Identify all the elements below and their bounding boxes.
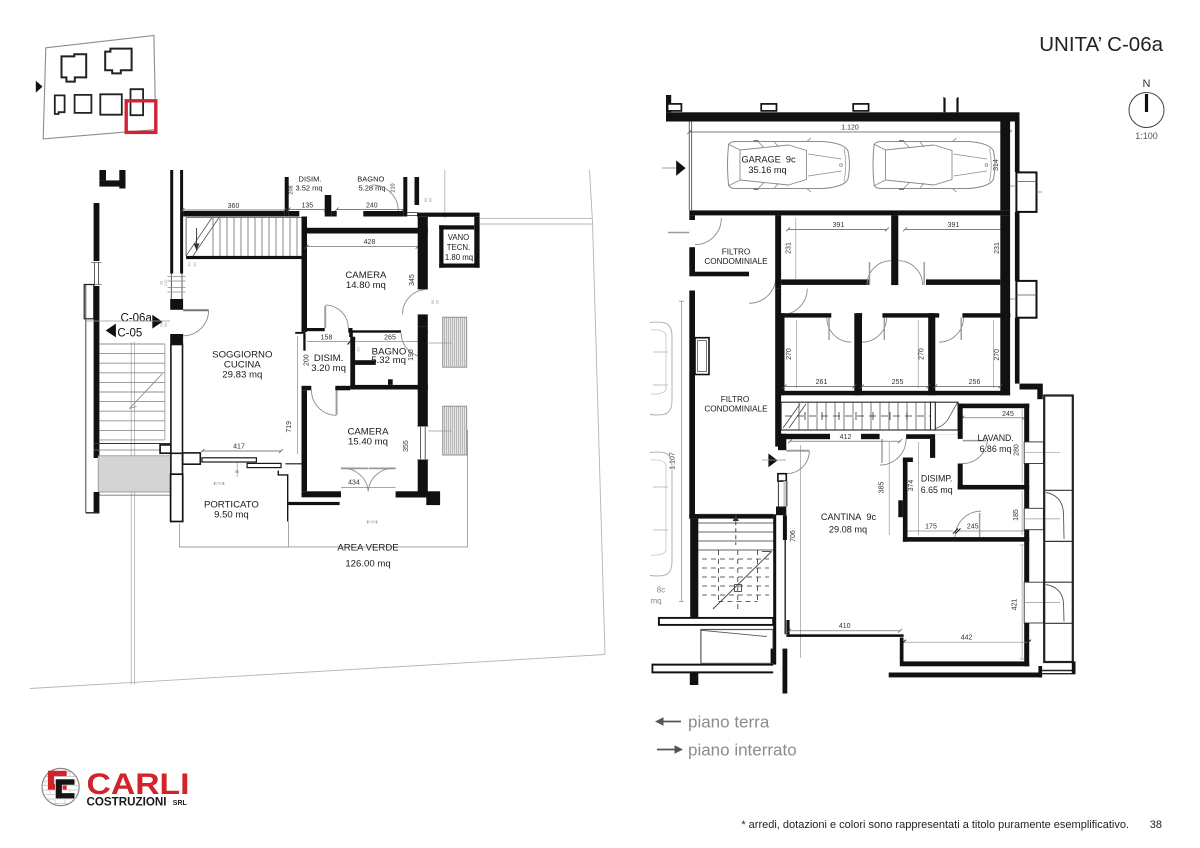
svg-text:417: 417 (233, 444, 245, 451)
svg-text:256: 256 (969, 379, 981, 386)
svg-text:mq: mq (650, 597, 661, 606)
svg-text:AREA VERDE: AREA VERDE (337, 543, 398, 554)
svg-text:C-06a: C-06a (121, 312, 153, 324)
svg-text:190: 190 (408, 349, 415, 361)
svg-text:410: 410 (839, 623, 851, 630)
svg-text:175: 175 (925, 524, 937, 531)
svg-text:706: 706 (790, 530, 797, 542)
svg-text:208: 208 (289, 185, 295, 194)
svg-text:135: 135 (301, 203, 313, 210)
svg-text:1.120: 1.120 (841, 125, 859, 132)
svg-text:374: 374 (908, 480, 915, 492)
svg-text:8c: 8c (657, 586, 665, 595)
svg-text:185: 185 (1013, 509, 1020, 521)
svg-text:* arredi, dotazioni e colori s: * arredi, dotazioni e colori sono rappre… (741, 819, 1129, 831)
svg-text:126.00 mq: 126.00 mq (345, 559, 390, 570)
svg-text:FILTRO: FILTRO (721, 395, 750, 404)
svg-text:piano interrato: piano interrato (688, 741, 797, 760)
svg-text:29.83 mq: 29.83 mq (222, 370, 262, 381)
svg-text:1:100: 1:100 (1135, 131, 1158, 141)
svg-text:245: 245 (1002, 411, 1014, 418)
svg-text:3.52 mq: 3.52 mq (295, 184, 322, 193)
svg-text:719: 719 (286, 421, 293, 433)
svg-text:265: 265 (384, 334, 396, 341)
svg-text:14.80 mq: 14.80 mq (346, 280, 386, 291)
svg-text:30: 30 (187, 262, 192, 267)
svg-text:412: 412 (840, 434, 852, 441)
svg-text:355: 355 (403, 440, 410, 452)
svg-text:35.16 mq: 35.16 mq (748, 165, 786, 175)
svg-text:BAGNO: BAGNO (357, 175, 384, 184)
svg-text:345: 345 (409, 274, 416, 286)
svg-text:3.20 mq: 3.20 mq (311, 363, 346, 374)
svg-text:270: 270 (786, 348, 793, 360)
svg-text:421: 421 (1012, 599, 1019, 611)
svg-text:360: 360 (228, 203, 240, 210)
svg-text:DISIMP.: DISIMP. (921, 474, 953, 484)
svg-text:280: 280 (1014, 444, 1021, 456)
svg-text:UNITA’ C-06a: UNITA’ C-06a (1039, 33, 1163, 56)
svg-text:20: 20 (192, 262, 197, 267)
svg-text:29.08 mq: 29.08 mq (829, 525, 867, 535)
svg-text:270: 270 (919, 348, 926, 360)
svg-text:VANO: VANO (448, 233, 470, 242)
svg-text:85: 85 (428, 197, 433, 202)
svg-text:261: 261 (816, 379, 828, 386)
svg-text:200: 200 (304, 354, 311, 366)
svg-text:428: 428 (364, 239, 376, 246)
svg-text:LAVAND.: LAVAND. (978, 433, 1014, 443)
svg-text:CONDOMINIALE: CONDOMINIALE (704, 405, 768, 414)
svg-text:1.80 mq: 1.80 mq (445, 253, 473, 262)
svg-text:120: 120 (163, 279, 168, 286)
svg-text:5.28 mq: 5.28 mq (358, 184, 385, 193)
svg-text:210: 210 (391, 183, 397, 192)
svg-text:DISIM.: DISIM. (299, 175, 322, 184)
svg-text:COSTRUZIONI: COSTRUZIONI (87, 794, 167, 808)
svg-text:38: 38 (1150, 819, 1162, 831)
svg-text:SRL: SRL (173, 798, 188, 807)
svg-text:6.86 mq: 6.86 mq (980, 444, 1012, 454)
svg-text:90: 90 (163, 322, 168, 327)
svg-text:245: 245 (967, 524, 979, 531)
svg-text:▮180▮: ▮180▮ (366, 519, 377, 524)
svg-text:391: 391 (833, 222, 845, 229)
svg-text:5.32 mq: 5.32 mq (371, 355, 406, 366)
svg-text:CONDOMINIALE: CONDOMINIALE (704, 257, 768, 266)
svg-text:391: 391 (948, 222, 960, 229)
svg-text:20: 20 (356, 347, 361, 352)
svg-text:255: 255 (892, 379, 904, 386)
svg-text:1.107: 1.107 (670, 452, 677, 470)
svg-text:231: 231 (785, 242, 792, 254)
svg-text:434: 434 (348, 479, 360, 486)
svg-text:442: 442 (961, 635, 973, 642)
svg-text:▮▮: ▮▮ (235, 470, 239, 474)
svg-text:385: 385 (879, 482, 886, 494)
svg-text:▮360▮: ▮360▮ (213, 481, 224, 486)
svg-text:N: N (1143, 78, 1151, 90)
svg-text:piano terra: piano terra (688, 713, 770, 732)
svg-text:6.65 mq: 6.65 mq (921, 485, 953, 495)
svg-text:FILTRO: FILTRO (722, 248, 751, 257)
svg-text:TECN.: TECN. (447, 243, 470, 252)
svg-text:CANTINA 9c: CANTINA 9c (821, 512, 877, 522)
svg-text:GARAGE 9c: GARAGE 9c (741, 155, 796, 165)
svg-text:20: 20 (159, 322, 164, 327)
svg-text:9.50 mq: 9.50 mq (214, 510, 249, 521)
svg-text:20: 20 (159, 280, 164, 285)
svg-text:240: 240 (366, 203, 378, 210)
svg-text:20: 20 (434, 299, 439, 304)
svg-text:270: 270 (994, 349, 1001, 361)
svg-text:314: 314 (993, 159, 1000, 171)
svg-text:15.40 mq: 15.40 mq (348, 437, 388, 448)
svg-text:231: 231 (994, 242, 1001, 254)
svg-text:158: 158 (321, 334, 333, 341)
svg-text:C-05: C-05 (117, 328, 142, 340)
